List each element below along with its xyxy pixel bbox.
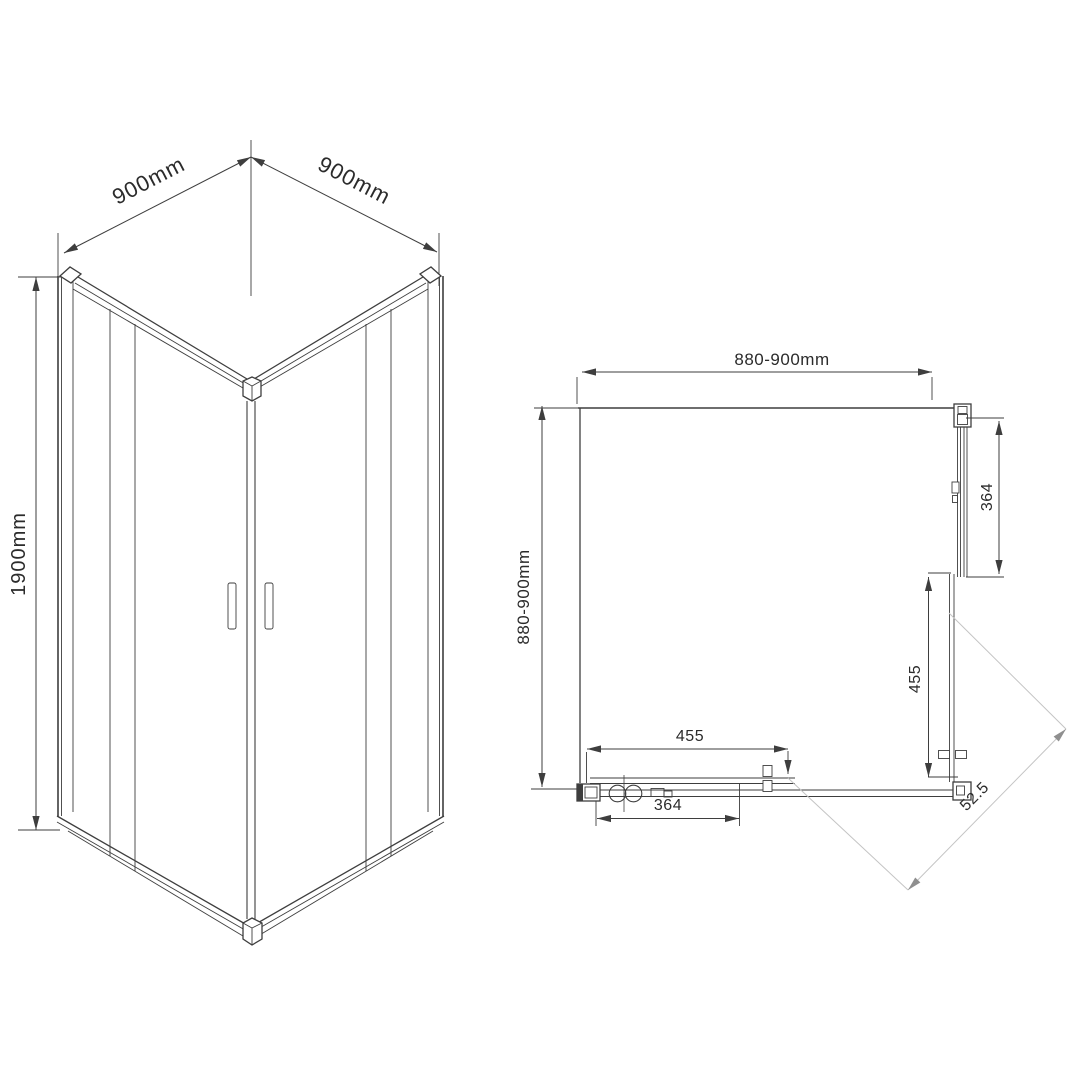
plan-top-right-corner-profile bbox=[954, 404, 971, 427]
iso-width-left-label: 900mm bbox=[108, 151, 189, 209]
iso-bottom-rail-left bbox=[57, 816, 247, 936]
plan-roller-left bbox=[609, 785, 626, 802]
plan-right-door-handle-inner bbox=[956, 751, 967, 759]
plan-side-depth-label: 880-900mm bbox=[514, 549, 533, 644]
plan-panel-latch bbox=[952, 482, 959, 493]
plan-diagonal-extension-right bbox=[949, 613, 1066, 729]
plan-door-rollers bbox=[609, 775, 642, 812]
iso-top-rail-right bbox=[254, 277, 428, 388]
iso-top-rail-left bbox=[73, 277, 247, 388]
plan-view: 880-900mm 880-900mm bbox=[514, 350, 1066, 890]
iso-right-door-handle bbox=[265, 583, 273, 629]
iso-width-right-label: 900mm bbox=[314, 151, 395, 209]
plan-diagonal-extension-left bbox=[788, 778, 908, 890]
plan-dim-left-depth: 880-900mm bbox=[514, 406, 582, 789]
iso-right-wall-profile bbox=[428, 276, 443, 817]
iso-dim-height: 1900mm bbox=[8, 277, 64, 830]
plan-dim-top-width: 880-900mm bbox=[577, 350, 932, 404]
iso-bottom-rail-right bbox=[254, 816, 444, 936]
plan-bottom-wall-profile bbox=[577, 784, 600, 801]
plan-dim-right-door: 455 bbox=[907, 573, 958, 777]
iso-corner-post bbox=[247, 401, 255, 919]
iso-left-door-handle bbox=[228, 583, 236, 629]
shower-enclosure-drawing: 900mm 900mm 1900mm bbox=[0, 0, 1080, 1080]
plan-bottom-fixed-panel-label: 364 bbox=[654, 797, 682, 814]
technical-drawing-page: 900mm 900mm 1900mm bbox=[0, 0, 1080, 1080]
iso-left-wall-profile bbox=[58, 276, 73, 817]
iso-post-bottom-cap bbox=[243, 918, 262, 945]
plan-right-fixed-panel bbox=[952, 427, 967, 577]
plan-right-door-handle-outer bbox=[939, 751, 950, 759]
plan-bottom-door-label: 455 bbox=[676, 728, 704, 745]
plan-dim-bottom-door: 455 bbox=[587, 728, 789, 783]
iso-right-corner-cap bbox=[420, 267, 441, 283]
plan-diagonal-dim-line bbox=[908, 729, 1066, 890]
plan-top-width-label: 880-900mm bbox=[734, 350, 829, 369]
iso-post-top-cap bbox=[243, 377, 261, 401]
iso-height-label: 1900mm bbox=[8, 512, 30, 596]
plan-right-door-label: 455 bbox=[907, 665, 924, 693]
plan-dim-diagonal-entry: 52.5 bbox=[788, 613, 1066, 890]
plan-dim-right-fixed: 364 bbox=[966, 418, 1004, 577]
plan-right-sliding-door bbox=[939, 574, 967, 782]
isometric-view: 900mm 900mm 1900mm bbox=[8, 140, 444, 945]
iso-dim-width-right: 900mm bbox=[251, 151, 439, 286]
iso-left-corner-cap bbox=[60, 267, 81, 283]
plan-right-fixed-panel-label: 364 bbox=[979, 483, 996, 511]
iso-dim-width-left: 900mm bbox=[58, 140, 251, 296]
plan-roller-right bbox=[625, 785, 642, 802]
